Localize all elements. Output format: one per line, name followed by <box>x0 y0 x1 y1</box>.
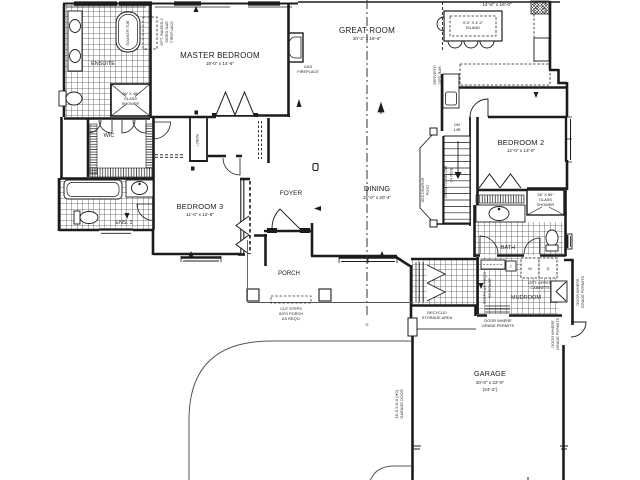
svg-text:OPEN TO BELOW: OPEN TO BELOW <box>443 165 448 198</box>
svg-text:BEDROOM 3: BEDROOM 3 <box>177 202 224 211</box>
svg-text:12'-0" x 13'-0": 12'-0" x 13'-0" <box>507 148 536 153</box>
svg-text:15'-0" x 20'-4": 15'-0" x 20'-4" <box>363 195 392 200</box>
svg-text:MASTER BEDROOM: MASTER BEDROOM <box>180 51 260 60</box>
svg-text:FIREPLACE: FIREPLACE <box>169 21 174 43</box>
svg-text:BY GRADE: BY GRADE <box>487 278 492 298</box>
svg-text:PORCH: PORCH <box>278 271 300 277</box>
svg-text:11'-0" x 12'-6": 11'-0" x 12'-6" <box>186 212 214 217</box>
svg-text:DINING: DINING <box>364 184 390 193</box>
svg-text:14'-6" x 16'-0": 14'-6" x 16'-0" <box>482 2 512 8</box>
svg-text:WIC: WIC <box>104 133 115 139</box>
svg-text:MUDROOM: MUDROOM <box>511 295 541 301</box>
svg-text:STORAGE AREA: STORAGE AREA <box>422 315 453 320</box>
svg-text:20'-0" x 22'-0": 20'-0" x 22'-0" <box>476 380 505 385</box>
svg-text:GARAGE: GARAGE <box>474 369 506 378</box>
svg-text:SHOWER: SHOWER <box>537 202 555 207</box>
svg-text:LINEN: LINEN <box>195 134 200 146</box>
svg-text:CABINETS: CABINETS <box>530 285 550 290</box>
svg-text:ISLAND: ISLAND <box>466 25 480 30</box>
svg-text:GRADE PERMITS: GRADE PERMITS <box>580 275 585 308</box>
svg-text:BATH: BATH <box>501 245 515 251</box>
svg-text:W: W <box>528 266 532 271</box>
svg-text:BEDROOM 2: BEDROOM 2 <box>498 138 545 147</box>
svg-text:POST: POST <box>425 184 430 195</box>
svg-text:ENS. 3: ENS. 3 <box>115 220 132 226</box>
svg-text:D: D <box>547 266 550 271</box>
svg-text:14 RISE: 14 RISE <box>449 167 454 182</box>
svg-text:OPT. BAR: OPT. BAR <box>437 66 442 84</box>
svg-text:AS REQ'D: AS REQ'D <box>282 316 300 321</box>
svg-text:(24'-2"): (24'-2") <box>483 387 498 392</box>
svg-text:SOAKER TUB: SOAKER TUB <box>125 20 130 45</box>
svg-text:SHOWER: SHOWER <box>122 101 140 106</box>
svg-text:FOYER: FOYER <box>280 190 303 197</box>
svg-text:14R: 14R <box>453 127 460 132</box>
svg-text:18'-0" x 14'-6": 18'-0" x 14'-6" <box>206 61 235 66</box>
svg-text:G: G <box>365 322 368 327</box>
svg-text:GRADE PERMITS: GRADE PERMITS <box>555 317 560 350</box>
svg-text:GARAGE DOOR: GARAGE DOOR <box>399 389 404 419</box>
svg-text:GRADE PERMITS: GRADE PERMITS <box>482 323 515 328</box>
svg-text:FIREPLACE: FIREPLACE <box>297 69 319 74</box>
svg-text:ENSUITE: ENSUITE <box>91 61 115 67</box>
